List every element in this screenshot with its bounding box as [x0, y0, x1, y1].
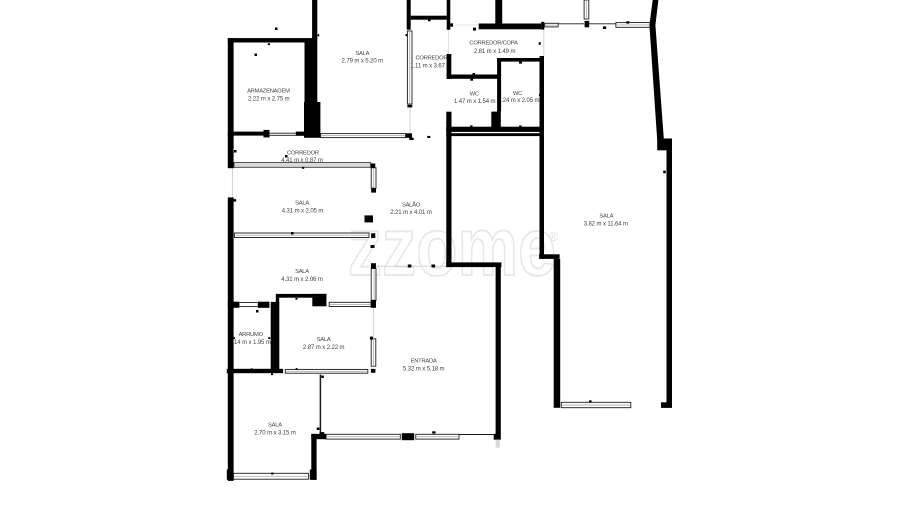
- svg-text:4.31 m x 2.06 m: 4.31 m x 2.06 m: [281, 277, 323, 283]
- svg-text:1.24 m x 2.05 m: 1.24 m x 2.05 m: [498, 98, 540, 104]
- svg-text:SALA: SALA: [295, 269, 309, 275]
- svg-text:zzome: zzome: [348, 201, 556, 294]
- svg-text:CORREDOR: CORREDOR: [415, 55, 447, 61]
- svg-text:3.82 m x 11.64 m: 3.82 m x 11.64 m: [584, 222, 628, 228]
- svg-text:1.47 m x 1.54 m: 1.47 m x 1.54 m: [454, 99, 496, 105]
- svg-text:ARRUMO: ARRUMO: [239, 332, 264, 338]
- svg-text:1.14 m x 1.95 m: 1.14 m x 1.95 m: [229, 340, 271, 346]
- svg-text:5.32 m x 5.18 m: 5.32 m x 5.18 m: [403, 366, 445, 372]
- svg-text:4.31 m x 2.05 m: 4.31 m x 2.05 m: [282, 209, 324, 215]
- svg-text:ARMAZENAGEM: ARMAZENAGEM: [247, 88, 290, 94]
- svg-text:WC: WC: [513, 91, 522, 97]
- svg-text:SALA: SALA: [268, 422, 282, 428]
- svg-text:2.70 m x 3.15 m: 2.70 m x 3.15 m: [254, 431, 296, 437]
- svg-text:2.87 m x 2.22 m: 2.87 m x 2.22 m: [303, 345, 345, 351]
- svg-text:SALA: SALA: [317, 337, 331, 343]
- svg-text:SALA: SALA: [599, 214, 613, 220]
- svg-text:WC: WC: [470, 92, 479, 98]
- svg-text:CORREDOR/COPA: CORREDOR/COPA: [469, 40, 518, 46]
- svg-text:1.11 m x 3.67 m: 1.11 m x 3.67 m: [410, 63, 451, 69]
- svg-text:CORREDOR: CORREDOR: [287, 151, 319, 157]
- svg-text:4.41 m x 0.87 m: 4.41 m x 0.87 m: [281, 158, 323, 164]
- svg-text:SALA: SALA: [295, 201, 309, 207]
- svg-text:SALA: SALA: [355, 51, 369, 57]
- svg-text:2.81 m x 1.49 m: 2.81 m x 1.49 m: [474, 49, 516, 55]
- svg-text:2.79 m x 5.20 m: 2.79 m x 5.20 m: [342, 59, 384, 65]
- svg-text:2.21 m x 4.01 m: 2.21 m x 4.01 m: [390, 210, 432, 216]
- svg-text:SALÃO: SALÃO: [402, 201, 421, 208]
- svg-text:®: ®: [549, 230, 559, 244]
- svg-text:2.22 m x 2.75 m: 2.22 m x 2.75 m: [248, 96, 290, 102]
- svg-text:ENTRADA: ENTRADA: [411, 358, 437, 364]
